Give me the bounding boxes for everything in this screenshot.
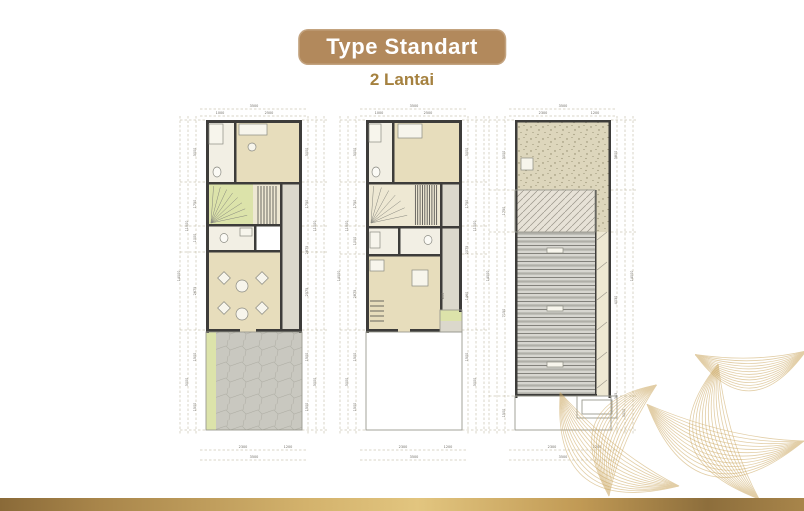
- svg-text:3000: 3000: [502, 151, 506, 160]
- svg-text:1000: 1000: [353, 237, 357, 246]
- svg-text:1460: 1460: [465, 292, 469, 301]
- svg-text:11000: 11000: [473, 221, 477, 232]
- svg-text:1750: 1750: [502, 207, 506, 216]
- gold-footer-bar: [0, 498, 804, 511]
- svg-text:1750: 1750: [465, 200, 469, 209]
- svg-text:3000: 3000: [465, 148, 469, 157]
- type-badge: Type Standart: [298, 29, 506, 65]
- svg-text:1750: 1750: [193, 200, 197, 209]
- svg-text:2075: 2075: [465, 246, 469, 255]
- svg-text:1000: 1000: [193, 234, 197, 243]
- svg-text:1500: 1500: [353, 403, 357, 412]
- svg-text:1750: 1750: [353, 200, 357, 209]
- svg-text:11000: 11000: [345, 221, 349, 232]
- svg-text:2875: 2875: [353, 290, 357, 299]
- svg-text:3000: 3000: [193, 148, 197, 157]
- svg-text:14000: 14000: [486, 271, 490, 282]
- svg-text:14000: 14000: [177, 271, 181, 282]
- svg-text:3500: 3500: [559, 104, 568, 108]
- svg-text:2500: 2500: [424, 111, 433, 115]
- svg-text:800: 800: [441, 293, 445, 299]
- svg-text:2575: 2575: [305, 288, 309, 297]
- poster-canvas: Type Standart 2 Lantai 35001000250030001…: [0, 0, 804, 511]
- type-badge-label: Type Standart: [326, 34, 478, 59]
- svg-text:1750: 1750: [305, 200, 309, 209]
- svg-text:1000: 1000: [216, 111, 225, 115]
- leaf-decoration: [474, 291, 804, 501]
- svg-text:1200: 1200: [284, 445, 293, 449]
- svg-text:3000: 3000: [313, 378, 317, 387]
- svg-text:3000: 3000: [345, 378, 349, 387]
- first-floor-plan: 3500100025003000175010002675150015001100…: [172, 100, 332, 470]
- svg-text:1000: 1000: [375, 111, 384, 115]
- svg-text:14000: 14000: [337, 271, 341, 282]
- svg-text:3000: 3000: [185, 378, 189, 387]
- svg-text:1500: 1500: [305, 353, 309, 362]
- svg-text:2675: 2675: [193, 287, 197, 296]
- svg-text:2875: 2875: [305, 246, 309, 255]
- svg-text:1200: 1200: [444, 445, 453, 449]
- second-floor-plan: 3500100025003000175010002875150015001100…: [332, 100, 492, 470]
- svg-text:2300: 2300: [239, 445, 248, 449]
- svg-text:3000: 3000: [353, 148, 357, 157]
- svg-text:11000: 11000: [313, 221, 317, 232]
- svg-text:3500: 3500: [250, 455, 259, 459]
- svg-text:1500: 1500: [465, 353, 469, 362]
- svg-text:1500: 1500: [305, 403, 309, 412]
- svg-text:11000: 11000: [185, 221, 189, 232]
- svg-text:3000: 3000: [305, 148, 309, 157]
- svg-text:1500: 1500: [193, 353, 197, 362]
- svg-text:1200: 1200: [591, 111, 600, 115]
- svg-text:3800: 3800: [614, 151, 618, 160]
- svg-text:3500: 3500: [410, 104, 419, 108]
- first-floor-plan-drawing: 3500100025003000175010002675150015001100…: [172, 100, 332, 470]
- svg-text:3500: 3500: [410, 455, 419, 459]
- svg-text:1500: 1500: [353, 353, 357, 362]
- svg-text:2300: 2300: [399, 445, 408, 449]
- second-floor-plan-drawing: 3500100025003000175010002875150015001100…: [332, 100, 492, 470]
- svg-text:14000: 14000: [630, 271, 634, 282]
- svg-text:1500: 1500: [193, 403, 197, 412]
- svg-text:2500: 2500: [265, 111, 274, 115]
- floors-subtitle: 2 Lantai: [370, 70, 434, 90]
- svg-text:2300: 2300: [539, 111, 548, 115]
- svg-text:3500: 3500: [250, 104, 259, 108]
